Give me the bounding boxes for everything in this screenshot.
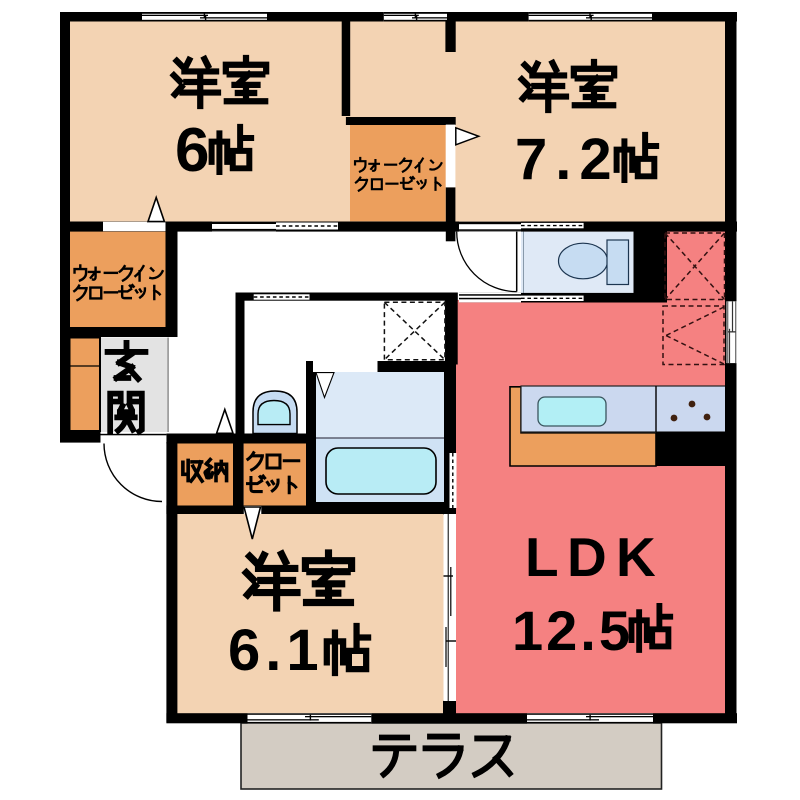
svg-text:12.5: 12.5 [512,599,633,662]
svg-text:7.2: 7.2 [515,127,620,192]
svg-text:L: L [525,526,559,588]
svg-text:6.1: 6.1 [228,618,324,683]
svg-text:D: D [567,526,607,588]
svg-text:6: 6 [175,116,209,185]
svg-text:K: K [616,526,656,588]
